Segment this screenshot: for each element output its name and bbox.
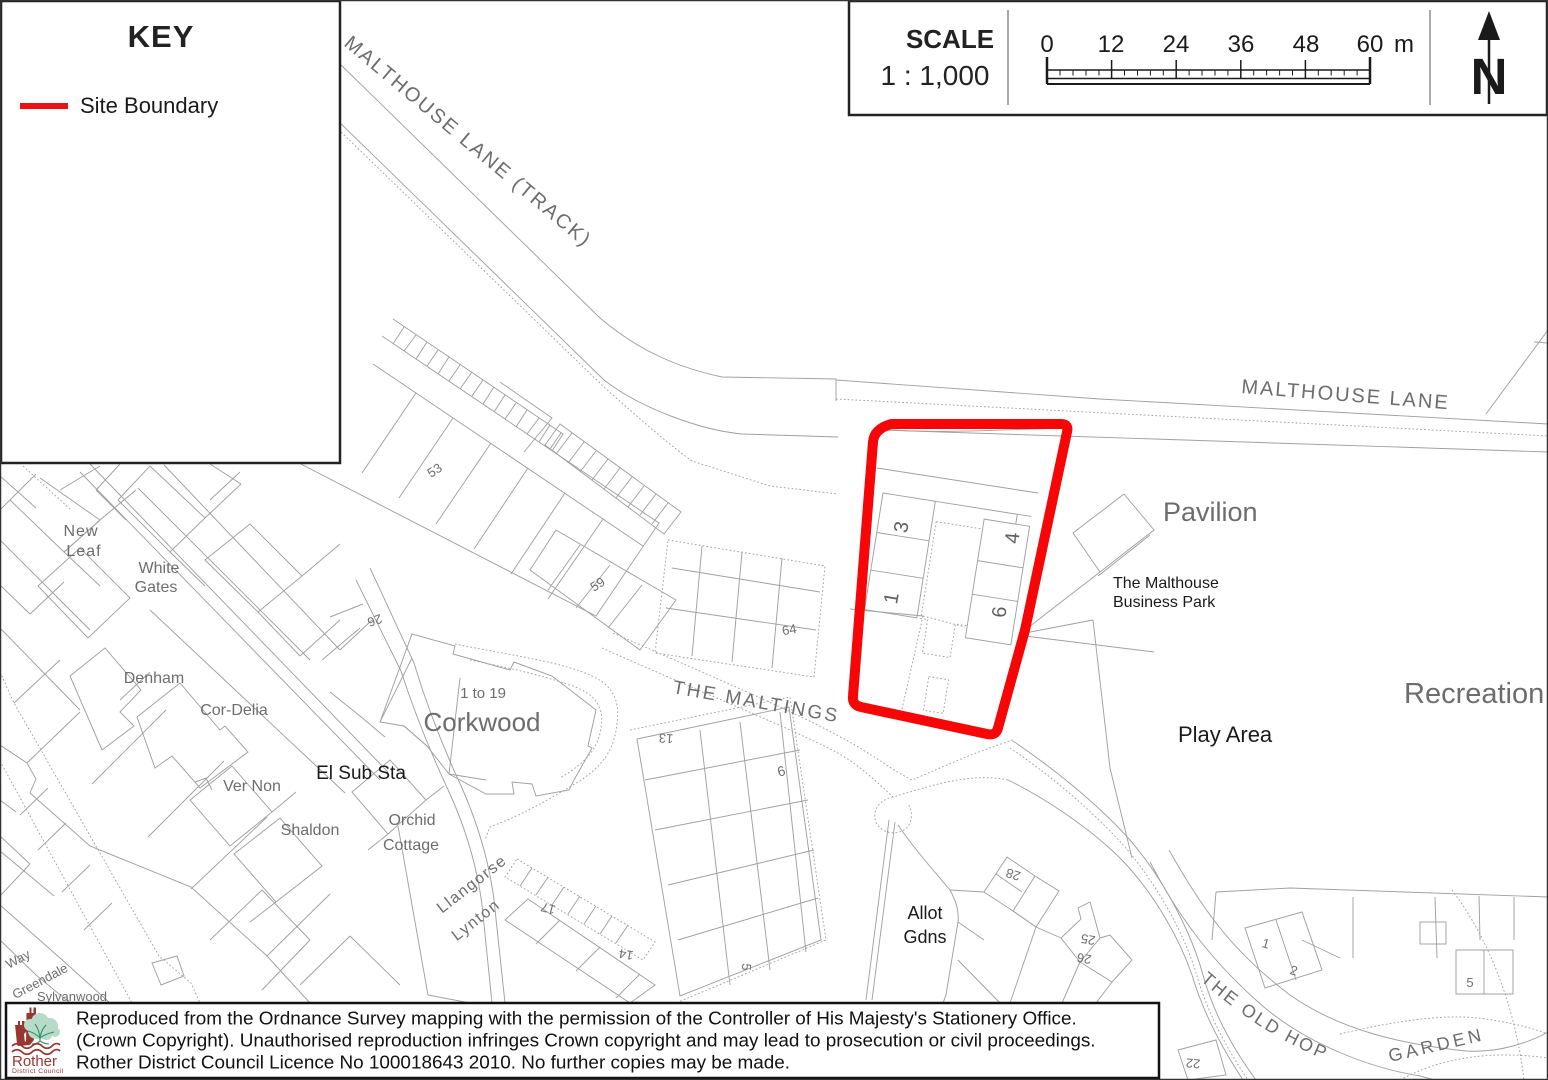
svg-text:(Crown Copyright). Unauthorise: (Crown Copyright). Unauthorised reproduc… (76, 1031, 1096, 1052)
svg-text:48: 48 (1293, 31, 1320, 58)
svg-text:22: 22 (1185, 1055, 1201, 1071)
svg-text:Recreation G: Recreation G (1404, 678, 1548, 710)
svg-text:Gates: Gates (135, 579, 178, 596)
svg-text:Leaf: Leaf (66, 543, 101, 560)
svg-text:25: 25 (1080, 931, 1097, 948)
svg-text:m: m (1394, 31, 1414, 58)
svg-text:24: 24 (1163, 31, 1190, 58)
svg-text:El Sub Sta: El Sub Sta (316, 763, 406, 784)
svg-text:Play Area: Play Area (1178, 722, 1273, 747)
svg-text:4: 4 (1002, 532, 1025, 545)
svg-text:Allot: Allot (907, 903, 942, 923)
svg-text:White: White (139, 560, 180, 577)
svg-text:Site Boundary: Site Boundary (80, 93, 218, 118)
svg-text:Ver Non: Ver Non (223, 778, 281, 795)
svg-text:Denham: Denham (124, 670, 184, 687)
svg-text:36: 36 (1228, 31, 1255, 58)
svg-text:Cor-Delia: Cor-Delia (200, 702, 268, 719)
svg-text:64: 64 (781, 621, 798, 638)
svg-text:6: 6 (989, 606, 1012, 619)
svg-text:KEY: KEY (128, 19, 195, 54)
svg-text:Gdns: Gdns (903, 927, 946, 947)
svg-text:26: 26 (1076, 950, 1093, 967)
svg-text:Reproduced from the Ordnance S: Reproduced from the Ordnance Survey mapp… (76, 1009, 1077, 1030)
svg-text:SCALE: SCALE (906, 24, 994, 54)
svg-text:12: 12 (1098, 31, 1125, 58)
svg-text:5: 5 (739, 963, 755, 972)
svg-text:Rother District Council Licenc: Rother District Council Licence No 10001… (76, 1053, 790, 1074)
svg-text:Shaldon: Shaldon (281, 822, 340, 839)
svg-text:1 : 1,000: 1 : 1,000 (881, 60, 990, 91)
svg-text:The Malthouse: The Malthouse (1113, 575, 1219, 592)
svg-text:Orchid: Orchid (388, 812, 435, 829)
svg-text:Cottage: Cottage (383, 837, 439, 854)
svg-text:N: N (1471, 48, 1508, 105)
svg-text:New: New (63, 523, 98, 540)
svg-text:14: 14 (618, 946, 635, 963)
svg-text:District Council: District Council (12, 1068, 64, 1075)
svg-text:1 to 19: 1 to 19 (460, 685, 506, 702)
svg-text:Business Park: Business Park (1113, 594, 1216, 611)
svg-text:5: 5 (1466, 975, 1473, 990)
svg-text:60: 60 (1357, 31, 1384, 58)
svg-text:Corkwood: Corkwood (423, 707, 540, 737)
svg-text:Pavilion: Pavilion (1163, 497, 1258, 527)
svg-text:0: 0 (1040, 31, 1053, 58)
svg-text:13: 13 (658, 731, 673, 747)
